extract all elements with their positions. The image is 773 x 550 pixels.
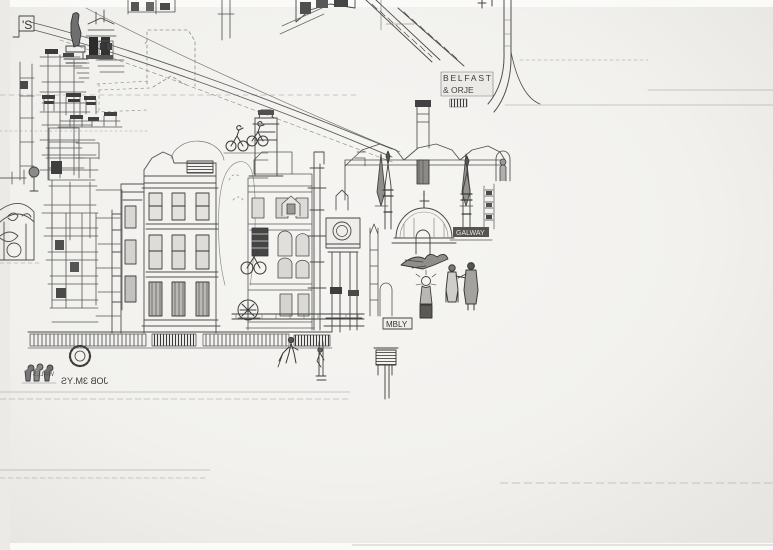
- svg-text:& ORJE: & ORJE: [443, 85, 474, 95]
- svg-text:'S: 'S: [22, 18, 32, 32]
- svg-text:WA'LLS: WA'LLS: [33, 372, 54, 378]
- svg-text:BELFAST: BELFAST: [443, 73, 491, 83]
- svg-text:JOB 3M.YS: JOB 3M.YS: [61, 376, 108, 386]
- svg-text:MBLY: MBLY: [386, 320, 408, 329]
- svg-text:GALWAY: GALWAY: [456, 230, 485, 237]
